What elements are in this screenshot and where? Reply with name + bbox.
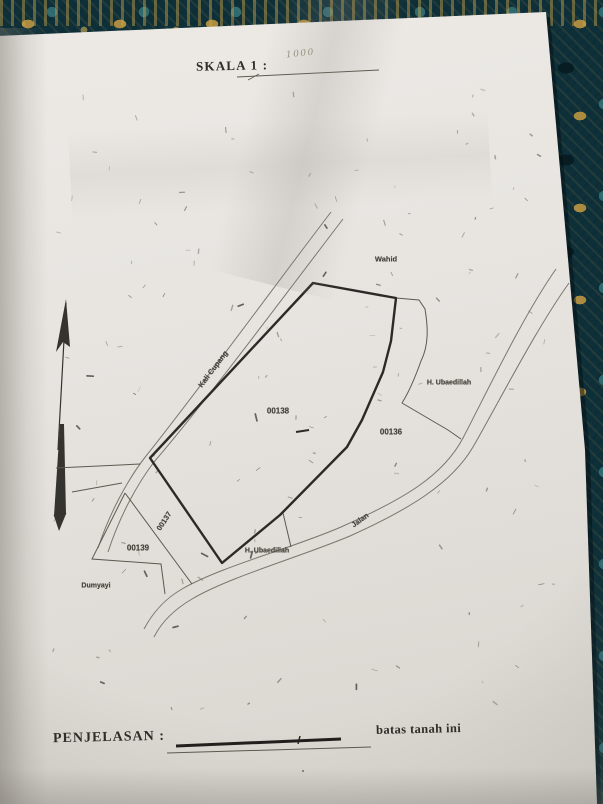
map-label-neighbor-dumyayi: Dumyayi bbox=[81, 583, 110, 590]
scale-heading: SKALA 1 : bbox=[196, 57, 269, 75]
map-label-parcel-00138: 00138 bbox=[267, 407, 289, 416]
map-label-neighbor-wahid: Wahid bbox=[375, 255, 397, 264]
map-label-neighbor-ubaedillah-south: H. Ubaedillah bbox=[245, 548, 289, 555]
map-label-neighbor-ubaedillah-east: H. Ubaedillah bbox=[427, 380, 471, 387]
legend-heading: PENJELASAN : bbox=[53, 729, 165, 748]
photo-of-land-sketch-document: SKALA 1 : 1000 Wahid Kali Cupang 00138 0… bbox=[0, 0, 603, 804]
legend-note: batas tanah ini bbox=[376, 721, 462, 738]
map-label-parcel-00139: 00139 bbox=[127, 544, 149, 553]
map-label-parcel-00136: 00136 bbox=[380, 428, 402, 437]
paper-sheet bbox=[0, 12, 597, 804]
stray-speck bbox=[302, 770, 304, 772]
paper-and-map-drawing bbox=[0, 0, 603, 804]
